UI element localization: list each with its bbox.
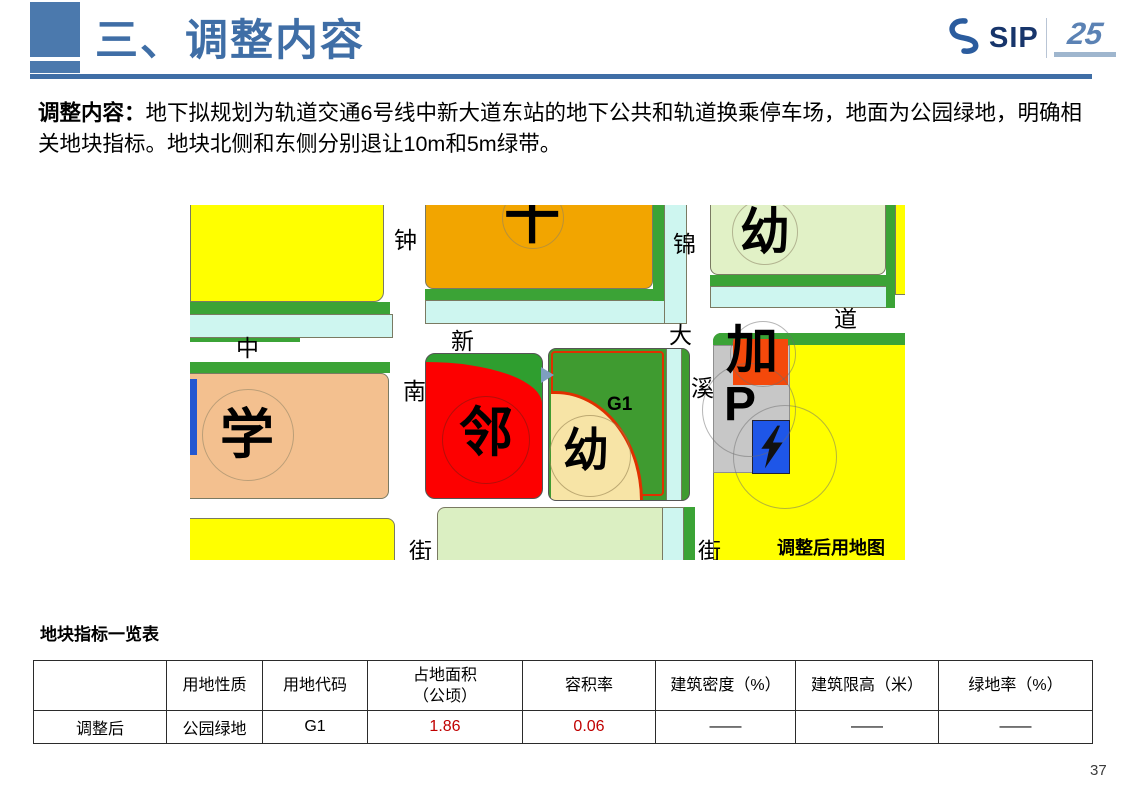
gas-glyph: 加	[726, 325, 778, 377]
header-land-code: 用地代码	[263, 661, 368, 711]
cell-row-label: 调整后	[34, 711, 167, 744]
station-marker-icon	[541, 367, 554, 383]
cell-land-code: G1	[263, 711, 368, 744]
school-glyph: 学	[220, 408, 274, 462]
adjustment-description: 调整内容：地下拟规划为轨道交通6号线中新大道东站的地下公共和轨道换乘停车场，地面…	[38, 98, 1090, 160]
header-density: 建筑密度（%）	[656, 661, 796, 711]
map-caption: 调整后用地图	[760, 534, 902, 560]
road-label-dao: 道	[834, 307, 857, 331]
anniversary-mark: 25	[1054, 19, 1116, 57]
page-title: 三、调整内容	[95, 6, 365, 68]
table-header-row: 用地性质 用地代码 占地面积 （公顷） 容积率 建筑密度（%） 建筑限高（米） …	[34, 661, 1093, 711]
header-height-limit: 建筑限高（米）	[796, 661, 939, 711]
green-belt-bottom-east	[684, 507, 695, 560]
sip-swirl-icon	[946, 18, 982, 59]
description-text: 地下拟规划为轨道交通6号线中新大道东站的地下公共和轨道换乘停车场，地面为公园绿地…	[38, 101, 1082, 156]
canal-orange-east	[664, 205, 687, 324]
g1-code-label: G1	[607, 395, 632, 414]
cell-far: 0.06	[523, 711, 656, 744]
block-yellow-sliver-ne	[895, 205, 905, 295]
table-title: 地块指标一览表	[40, 620, 159, 645]
title-accent-bar	[30, 61, 80, 73]
page-number: 37	[1090, 762, 1107, 779]
header-green-ratio: 绿地率（%）	[939, 661, 1093, 711]
cell-area: 1.86	[368, 711, 523, 744]
title-underline	[30, 74, 1092, 79]
road-label-zhong-x: 中	[236, 336, 259, 360]
road-label-nan: 南	[403, 379, 426, 403]
road-label-da: 大	[669, 323, 692, 347]
description-label: 调整内容：	[38, 101, 146, 125]
plot-indicator-table: 用地性质 用地代码 占地面积 （公顷） 容积率 建筑密度（%） 建筑限高（米） …	[33, 660, 1093, 744]
sip-logo-text: SIP	[989, 22, 1039, 55]
cell-density: ——	[656, 711, 796, 744]
road-label-jie-w: 街	[409, 539, 432, 560]
lightning-icon	[756, 422, 788, 477]
cell-land-use: 公园绿地	[167, 711, 263, 744]
header-land-use: 用地性质	[167, 661, 263, 711]
blue-sliver-school	[190, 379, 197, 455]
header-blank	[34, 661, 167, 711]
header-area: 占地面积 （公顷）	[368, 661, 523, 711]
logo-divider	[1046, 18, 1047, 58]
parking-glyph: P	[724, 381, 756, 429]
green-belt-ne-east	[886, 205, 895, 308]
g1-canal-east	[666, 349, 682, 501]
kindergarten-sw-glyph: 幼	[563, 427, 609, 473]
block-g1-plot: 幼 G1	[548, 348, 690, 501]
canal-topleft	[190, 314, 393, 338]
block-yellow-topleft	[190, 205, 384, 302]
land-use-map: 十 幼 学 邻 幼 G1 加 P	[190, 205, 905, 560]
block-neighborhood: 邻	[425, 353, 543, 499]
road-label-jie-e: 街	[698, 539, 721, 560]
cell-green-ratio: ——	[939, 711, 1093, 744]
cell-height-limit: ——	[796, 711, 939, 744]
road-label-xi: 溪	[691, 376, 714, 400]
road-label-zhong-s: 钟	[394, 228, 417, 252]
hospital-cross-glyph: 十	[504, 205, 560, 247]
sip-logo: SIP 25	[946, 12, 1116, 64]
anniversary-25: 25	[1065, 19, 1104, 49]
green-belt-school-north	[190, 362, 390, 373]
logo-small-caption	[1054, 52, 1116, 57]
green-belt-ne	[710, 275, 894, 286]
green-belt-orange	[425, 289, 653, 300]
header-far: 容积率	[523, 661, 656, 711]
block-yellow-bottomleft	[190, 518, 395, 560]
green-belt-topleft	[190, 302, 390, 314]
canal-orange	[425, 300, 666, 324]
road-label-jin: 锦	[673, 232, 696, 256]
neighborhood-glyph: 邻	[459, 406, 513, 460]
canal-ne	[710, 286, 895, 308]
kindergarten-ne-glyph: 幼	[740, 207, 790, 257]
table-row: 调整后 公园绿地 G1 1.86 0.06 —— —— ——	[34, 711, 1093, 744]
title-accent-square	[30, 2, 80, 57]
canal-bottom	[662, 507, 684, 560]
road-label-xin: 新	[451, 329, 474, 353]
block-lightgreen-bottom	[437, 507, 663, 560]
